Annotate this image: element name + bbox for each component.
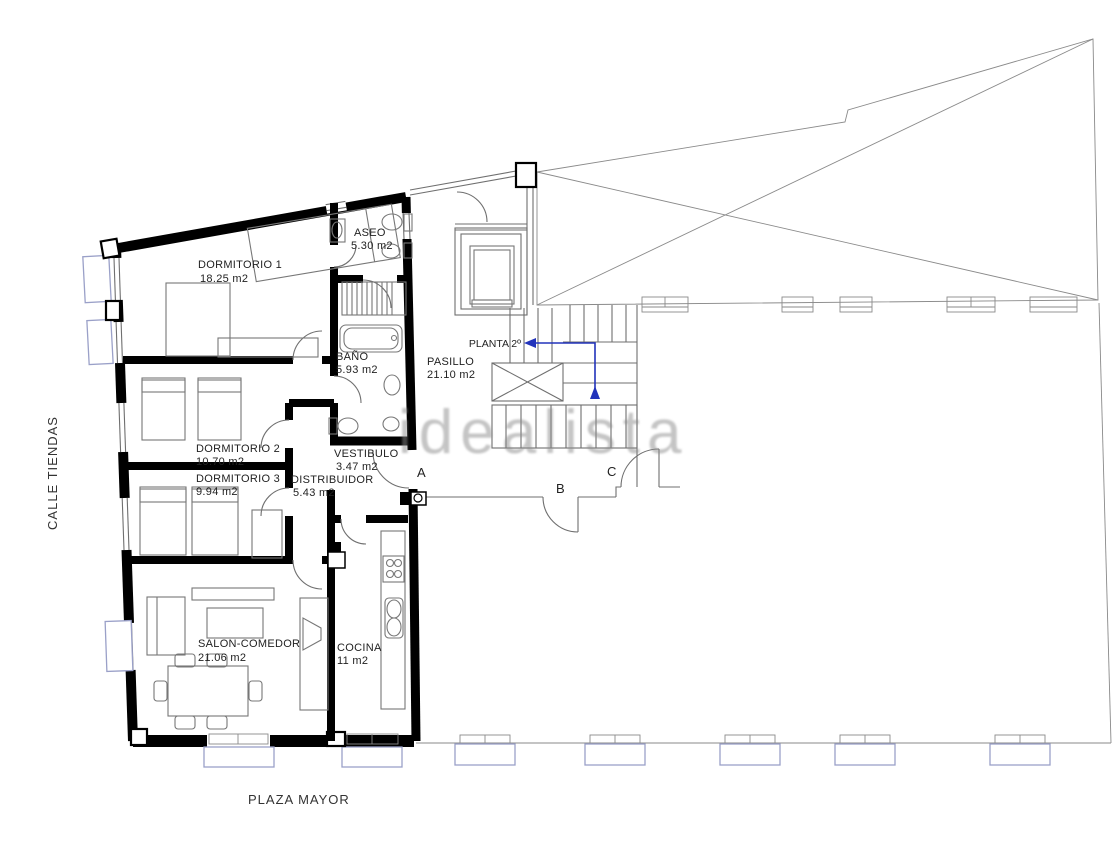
entry-door-frame — [400, 492, 426, 505]
dormitorio3-label: DORMITORIO 3 — [196, 473, 280, 485]
aseo-area: 5.30 m2 — [351, 240, 393, 252]
pasillo-area: 21.10 m2 — [427, 369, 475, 381]
dormitorio3-area: 9.94 m2 — [196, 486, 238, 498]
dormitorio1-label: DORMITORIO 1 — [198, 259, 282, 271]
pasillo-label: PASILLO — [427, 356, 474, 368]
dormitorio2-area: 10.70 m2 — [196, 456, 244, 468]
facade-window — [835, 735, 895, 765]
facade-window — [585, 735, 645, 765]
watermark-text: idealista — [398, 398, 688, 467]
cocina-label: COCINA — [337, 642, 382, 654]
distribuidor-area: 5.43 m2 — [293, 487, 335, 499]
distribuidor-label: DISTRIBUIDOR — [291, 474, 373, 486]
facade-window — [720, 735, 780, 765]
floor-plan-page: DORMITORIO 1 18.25 m2 ASEO 5.30 m2 BAÑO … — [0, 0, 1120, 850]
unit-markers: A B C — [417, 464, 616, 496]
aseo-label: ASEO — [354, 227, 386, 239]
bano-label: BAÑO — [336, 350, 369, 363]
bano-area: 5.93 m2 — [336, 364, 378, 376]
salon-door-arc — [293, 560, 322, 589]
dormitorio1-area: 18.25 m2 — [200, 273, 248, 285]
dormitorio3-door-arc — [261, 488, 289, 516]
cocina-door-arc — [341, 519, 366, 544]
floor-plan: DORMITORIO 1 18.25 m2 ASEO 5.30 m2 BAÑO … — [0, 0, 1120, 850]
floor-note-label: PLANTA 2º — [469, 338, 521, 350]
facade-window — [990, 735, 1050, 765]
salon-label: SALON-COMEDOR — [198, 638, 300, 650]
bano-door-arc — [334, 376, 361, 403]
dormitorio2-furniture — [142, 378, 241, 440]
door-b-arc — [543, 497, 578, 532]
vestibulo-label: VESTIBULO — [334, 448, 399, 460]
upper-window-row — [642, 297, 1077, 312]
street-left-label: CALLE TIENDAS — [45, 416, 60, 530]
kitchen-wall-fixture — [328, 542, 345, 568]
stairs-arrow-icon — [524, 338, 536, 348]
vestibulo-area: 3.47 m2 — [336, 461, 378, 473]
marker-a: A — [417, 465, 426, 480]
salon-area: 21.06 m2 — [198, 652, 246, 664]
marker-b: B — [556, 481, 565, 496]
elevator — [410, 168, 533, 315]
dormitorio2-label: DORMITORIO 2 — [196, 443, 280, 455]
bottom-facade — [416, 303, 1111, 765]
stairs-direction-line — [536, 343, 595, 397]
cocina-fixtures — [381, 531, 405, 709]
roof-area-outline — [537, 39, 1098, 305]
lobby-door-arc — [457, 192, 487, 222]
street-bottom-label: PLAZA MAYOR — [248, 792, 350, 807]
cocina-area: 11 m2 — [337, 655, 368, 667]
facade-window — [455, 735, 515, 765]
